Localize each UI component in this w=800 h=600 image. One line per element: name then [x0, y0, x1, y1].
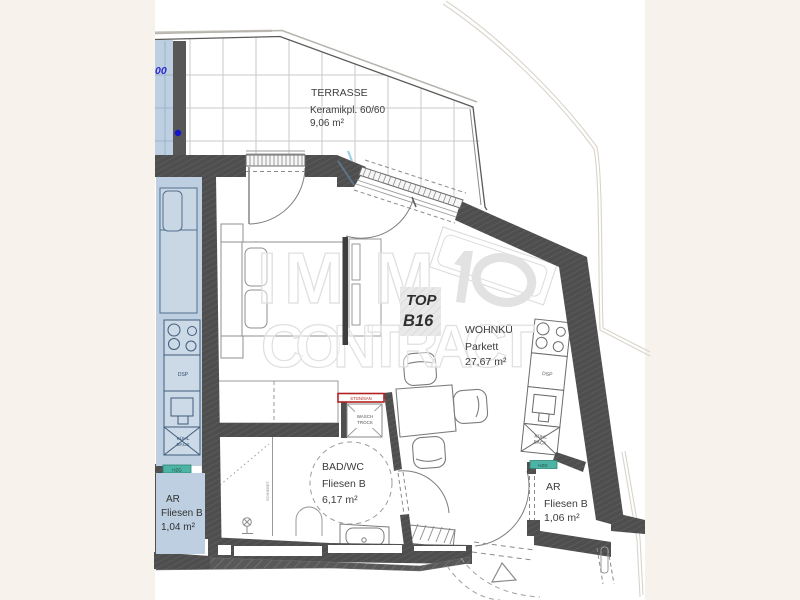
svg-text:6,17 m²: 6,17 m²: [322, 494, 358, 506]
svg-text:I: I: [257, 239, 277, 319]
svg-text:HZG: HZG: [172, 468, 182, 473]
svg-text:WOHNKÜ: WOHNKÜ: [465, 324, 513, 336]
svg-text:1,04 m²: 1,04 m²: [161, 522, 196, 533]
svg-text:DSP: DSP: [542, 371, 554, 378]
svg-text:Fliesen B: Fliesen B: [544, 498, 588, 510]
svg-text:DSP: DSP: [178, 372, 189, 378]
svg-text:HZG: HZG: [538, 463, 548, 468]
svg-text:TROCK: TROCK: [357, 420, 373, 425]
svg-text:AR: AR: [546, 481, 561, 493]
svg-text:00: 00: [155, 65, 167, 77]
svg-text:SCHIEBET.: SCHIEBET.: [265, 480, 270, 501]
svg-text:TOP: TOP: [406, 292, 438, 309]
svg-text:27,67 m²: 27,67 m²: [465, 356, 507, 368]
svg-text:TERRASSE: TERRASSE: [311, 87, 368, 99]
svg-text:KÜHL: KÜHL: [177, 435, 190, 442]
svg-text:STGN/SAN: STGN/SAN: [350, 396, 371, 401]
svg-text:AR: AR: [166, 494, 180, 505]
svg-text:9,06 m²: 9,06 m²: [310, 118, 345, 129]
svg-text:1,06 m²: 1,06 m²: [544, 512, 580, 524]
svg-text:BAD/WC: BAD/WC: [322, 461, 364, 473]
svg-text:Fliesen B: Fliesen B: [322, 478, 366, 490]
svg-text:Parkett: Parkett: [465, 341, 498, 353]
svg-text:Fliesen B: Fliesen B: [161, 508, 203, 519]
svg-text:BACK: BACK: [176, 442, 190, 448]
svg-text:Keramikpl. 60/60: Keramikpl. 60/60: [310, 105, 385, 116]
svg-text:WASCH: WASCH: [357, 414, 374, 419]
svg-text:M: M: [284, 239, 344, 319]
svg-text:B16: B16: [403, 312, 434, 330]
